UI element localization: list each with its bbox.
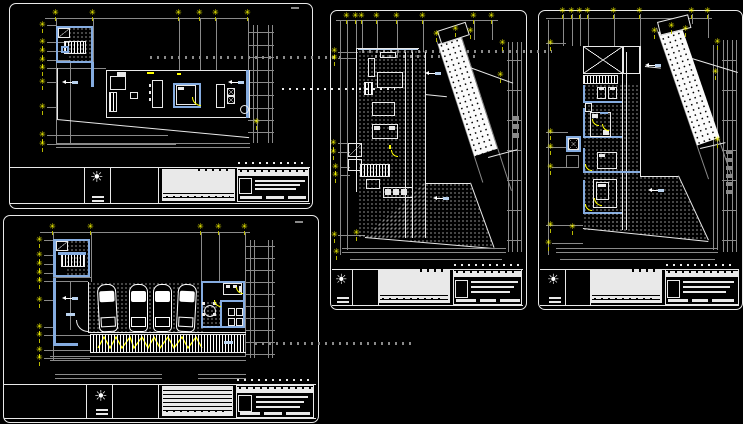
grid-line (4, 418, 316, 419)
drawing-outline (236, 318, 243, 326)
dimension-ticks (166, 410, 228, 412)
drawing-element (726, 182, 732, 186)
grid-line (338, 52, 358, 53)
grid-line (521, 42, 522, 252)
drawing-element (255, 184, 300, 186)
car-icon (153, 284, 172, 332)
drawing-element (471, 281, 518, 283)
drawing-element (288, 196, 306, 199)
grid-line (338, 58, 356, 59)
grid-line (201, 232, 202, 282)
grid-line (158, 384, 159, 418)
grid-line (423, 20, 424, 52)
drawing-element (471, 286, 514, 288)
grid-line (268, 25, 269, 143)
drawing-element (255, 180, 305, 182)
grid-line (722, 120, 737, 121)
drawing-element (500, 299, 520, 302)
grid-line (44, 335, 90, 336)
grid-line (272, 25, 273, 143)
drawing-outline (348, 143, 362, 157)
dimension-ticks (382, 298, 444, 300)
grid-line (219, 232, 220, 282)
grid-line (56, 147, 250, 148)
drawing-element (513, 133, 519, 138)
drawing-outline (227, 96, 235, 104)
drawing-element (91, 62, 94, 87)
drawing-element (240, 196, 262, 199)
drawing-element (683, 281, 734, 283)
grid-line (246, 354, 275, 355)
grid-line (723, 40, 724, 252)
dimension-ticks (239, 386, 311, 389)
drawing-element (163, 390, 232, 391)
drawing-element (226, 285, 230, 288)
drawing-element (592, 295, 660, 296)
entry-arrow-icon (62, 80, 78, 85)
drawing-element (592, 114, 598, 118)
grid-line (727, 40, 728, 252)
grid-line (246, 306, 275, 307)
grid-line (246, 294, 275, 295)
logo-sun-icon (335, 273, 348, 287)
drawing-element (177, 73, 181, 75)
grid-line (640, 46, 641, 176)
dimension-ticks (255, 342, 413, 345)
drawing-element (599, 88, 604, 90)
grid-line (492, 20, 493, 40)
drawing-element (117, 72, 126, 76)
grid-line (722, 90, 737, 91)
grid-line (722, 60, 737, 61)
drawing-outline (455, 280, 468, 298)
drawing-outline (216, 84, 225, 108)
entry-arrow-icon (228, 80, 244, 85)
drawing-element (583, 85, 585, 101)
logo-sun-icon (90, 170, 103, 185)
grid-line (342, 248, 506, 249)
dimension-ticks (150, 56, 340, 59)
drawing-element (513, 124, 519, 129)
grid-line (340, 20, 341, 255)
drawing-element (163, 193, 234, 194)
entry-arrow-icon (62, 296, 78, 301)
drawing-element (92, 200, 104, 202)
grid-line (556, 252, 718, 253)
car-icon (129, 284, 148, 332)
grid-line (216, 18, 217, 70)
drawing-element (471, 291, 510, 293)
grid-line (356, 48, 419, 49)
grid-line (248, 108, 274, 109)
grid-line (246, 270, 275, 271)
line-hatch-area (361, 165, 389, 176)
grid-line (692, 14, 693, 24)
drawing-outline (130, 92, 138, 99)
grid-line (70, 63, 71, 143)
drawing-element (600, 112, 608, 114)
grid-line (50, 356, 246, 357)
grid-line (246, 318, 275, 319)
grid-line (425, 183, 470, 184)
drawing-element (96, 409, 108, 411)
grid-line (352, 269, 353, 305)
drawing-element (337, 297, 349, 299)
drawing-element (583, 148, 585, 171)
dimension-ticks (240, 169, 306, 172)
drawing-element (598, 184, 606, 187)
entry-arrow-icon (425, 71, 441, 76)
drawing-element (726, 190, 732, 194)
drawing-element (96, 413, 108, 415)
grid-line (88, 332, 246, 333)
grid-line (44, 350, 90, 351)
drawing-element (393, 189, 399, 195)
drawing-element (53, 239, 56, 346)
grid-line (70, 282, 71, 330)
grid-line (246, 246, 275, 247)
line-hatch-area (584, 76, 617, 83)
grid-line (246, 282, 275, 283)
grid-line (507, 180, 522, 181)
dimension-ticks (456, 270, 519, 273)
grid-line (86, 384, 87, 418)
grid-line (540, 305, 739, 306)
grid-line (556, 248, 718, 249)
drawing-outline (568, 138, 579, 150)
drawing-element (224, 341, 233, 344)
drawing-element (549, 301, 561, 303)
grid-line (563, 14, 564, 46)
car-icon (97, 284, 118, 333)
drawing-element (256, 401, 304, 403)
grid-line (200, 18, 201, 70)
drawing-outline (238, 395, 252, 412)
drawing-element (286, 412, 310, 415)
grid-line (552, 243, 583, 244)
grid-line (248, 132, 274, 133)
drawing-outline (152, 80, 163, 108)
drawing-outline (110, 76, 126, 90)
drawing-element (58, 252, 86, 255)
grid-line (474, 20, 475, 40)
grid-line (248, 45, 274, 46)
grid-line (45, 18, 248, 19)
drawing-outline (368, 58, 375, 77)
drawing-element (337, 301, 349, 303)
cad-layout-canvas (0, 0, 743, 424)
grid-line (93, 18, 94, 68)
drawing-outline (583, 46, 623, 74)
dimension-ticks (632, 269, 660, 272)
drawing-element (295, 221, 303, 223)
grid-line (507, 210, 522, 211)
line-hatch-area (365, 83, 372, 94)
drawing-element (163, 406, 232, 407)
grid-line (246, 258, 275, 259)
grid-line (507, 60, 522, 61)
grid-line (112, 384, 113, 418)
grid-line (560, 259, 715, 260)
drawing-element (202, 302, 205, 305)
grid-line (47, 135, 168, 136)
grid-line (47, 68, 106, 69)
drawing-element (53, 343, 78, 346)
drawing-element (599, 154, 605, 157)
entry-arrow-icon (645, 63, 661, 68)
drawing-element (683, 291, 726, 293)
drawing-element (147, 72, 154, 74)
drawing-element (456, 299, 476, 302)
drawing-element (149, 98, 151, 101)
drawing-element (583, 180, 585, 212)
drawing-element (178, 87, 184, 90)
drawing-element (401, 189, 407, 195)
logo-sun-icon (94, 389, 107, 404)
drawing-element (163, 402, 232, 403)
grid-line (614, 14, 615, 46)
grid-line (248, 82, 274, 83)
logo-sun-icon (547, 273, 560, 287)
grid-line (708, 14, 709, 38)
grid-line (350, 259, 502, 260)
drawing-element (389, 145, 391, 149)
drawing-element (202, 313, 205, 316)
drawing-element (222, 300, 245, 302)
grid-line (347, 20, 348, 250)
drawing-element (583, 108, 585, 136)
drawing-outline (236, 308, 243, 316)
grid-line (507, 90, 522, 91)
grid-line (55, 378, 162, 379)
drawing-element (583, 171, 640, 173)
drawing-element (683, 286, 730, 288)
grid-line (722, 210, 737, 211)
drawing-element (66, 313, 75, 316)
drawing-outline (380, 52, 396, 58)
drawing-element (149, 91, 151, 94)
dimension-ticks (198, 168, 233, 171)
line-hatch-area (90, 335, 246, 352)
grid-line (580, 14, 581, 46)
dimension-ticks (454, 264, 520, 266)
drawing-element (374, 126, 380, 130)
drawing-element (513, 116, 519, 121)
grid-line (110, 167, 111, 203)
drawing-element (163, 394, 232, 395)
line-hatch-area (110, 93, 116, 111)
drawing-element (256, 406, 300, 408)
grid-line (508, 42, 509, 252)
drawing-element (712, 299, 734, 302)
grid-line (179, 18, 180, 70)
grid-line (248, 18, 249, 70)
grid-line (248, 120, 274, 121)
dimension-ticks (238, 162, 308, 164)
drawing-element (264, 412, 282, 415)
dimension-ticks (420, 269, 448, 272)
grid-line (44, 281, 88, 282)
drawing-outline (377, 72, 403, 88)
drawing-outline (228, 308, 235, 316)
entry-arrow-icon (648, 188, 664, 193)
grid-line (248, 32, 274, 33)
line-hatch-area (62, 254, 84, 266)
grid-line (572, 14, 573, 46)
dimension-ticks (594, 298, 656, 300)
grid-line (552, 167, 566, 168)
drawing-element (213, 313, 216, 316)
grid-line (88, 282, 89, 332)
grid-line (56, 143, 250, 144)
drawing-element (92, 196, 104, 198)
drawing-outline (61, 46, 69, 53)
drawing-element (163, 398, 232, 399)
drawing-element (549, 297, 561, 299)
drawing-element (692, 299, 708, 302)
drawing-element (291, 7, 299, 9)
drawing-outline (667, 280, 680, 298)
grid-line (90, 352, 246, 353)
dimension-ticks (668, 270, 736, 273)
drawing-element (255, 188, 296, 190)
grid-line (198, 374, 246, 375)
drawing-outline (366, 179, 380, 189)
grid-line (342, 252, 506, 253)
grid-line (640, 14, 641, 46)
drawing-element (480, 299, 496, 302)
dimension-ticks (237, 379, 311, 381)
drawing-element (266, 196, 284, 199)
drawing-element (240, 412, 260, 415)
grid-line (84, 167, 85, 203)
entry-arrow-icon (433, 196, 449, 201)
grid-line (246, 330, 275, 331)
grid-line (507, 240, 522, 241)
grid-line (55, 374, 162, 375)
grid-line (722, 240, 737, 241)
drawing-element (256, 396, 308, 398)
dimension-ticks (166, 196, 230, 198)
drawing-outline (372, 102, 395, 116)
grid-line (248, 95, 274, 96)
drawing-element (385, 189, 391, 195)
drawing-element (668, 299, 688, 302)
drawing-element (149, 84, 151, 87)
grid-line (50, 360, 246, 361)
drawing-element (726, 150, 732, 154)
grid-line (340, 175, 350, 176)
grid-line (332, 305, 523, 306)
drawing-outline (566, 155, 579, 168)
grid-line (57, 68, 58, 119)
grid-line (588, 14, 589, 46)
drawing-element (380, 295, 448, 296)
grid-line (158, 167, 159, 203)
drawing-outline (239, 178, 252, 194)
grid-line (722, 180, 737, 181)
grid-line (10, 203, 310, 204)
grid-line (47, 144, 176, 145)
grid-line (53, 277, 91, 278)
grid-line (248, 70, 274, 71)
drawing-outline (227, 88, 235, 96)
grid-line (91, 232, 92, 282)
grid-line (517, 42, 518, 252)
car-icon (176, 284, 197, 333)
drawing-outline (585, 103, 592, 112)
drawing-element (610, 88, 615, 90)
drawing-element (389, 126, 395, 130)
grid-line (44, 358, 90, 359)
grid-line (640, 176, 678, 177)
grid-line (512, 42, 513, 252)
dimension-ticks (666, 264, 736, 266)
symbol-circle (240, 105, 249, 114)
grid-line (565, 269, 566, 305)
drawing-outline (58, 28, 70, 38)
drawing-outline (228, 318, 235, 326)
drawing-outline (56, 241, 68, 251)
